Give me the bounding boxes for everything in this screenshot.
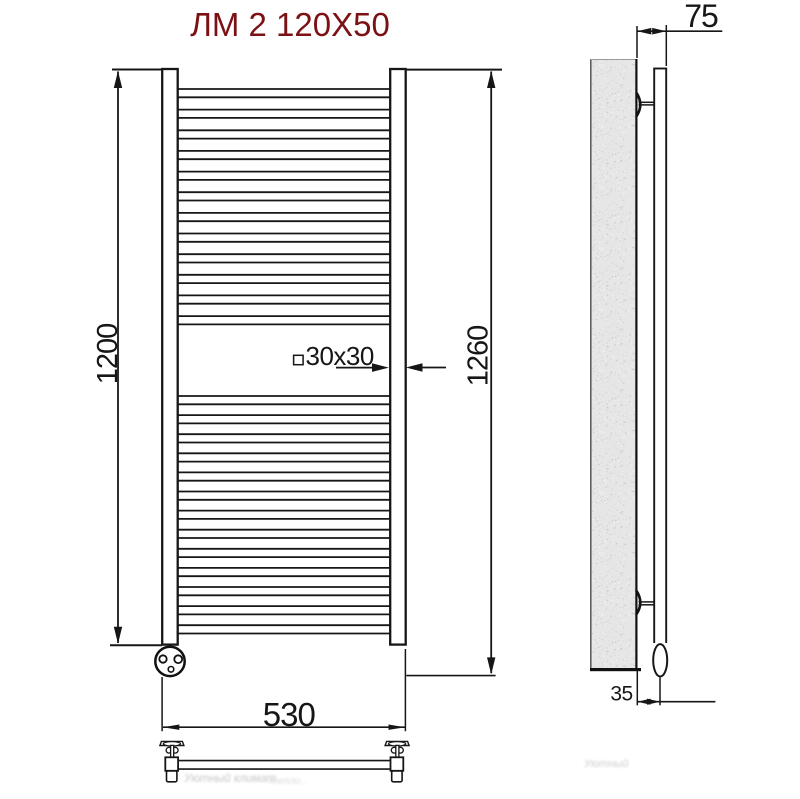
svg-text:Уютный климат: Уютный климат [183, 773, 276, 785]
svg-text:35: 35 [610, 683, 632, 706]
svg-text:Уютный: Уютный [583, 758, 629, 770]
svg-text:ЛМ 2 120Х50: ЛМ 2 120Х50 [190, 6, 390, 43]
svg-text:530: 530 [263, 696, 316, 733]
svg-text:1260: 1260 [463, 326, 495, 387]
svg-text:75: 75 [684, 0, 718, 34]
svg-text:1200: 1200 [92, 324, 124, 385]
svg-text:тепло..: тепло.. [270, 776, 306, 787]
svg-text:30x30: 30x30 [306, 341, 374, 371]
